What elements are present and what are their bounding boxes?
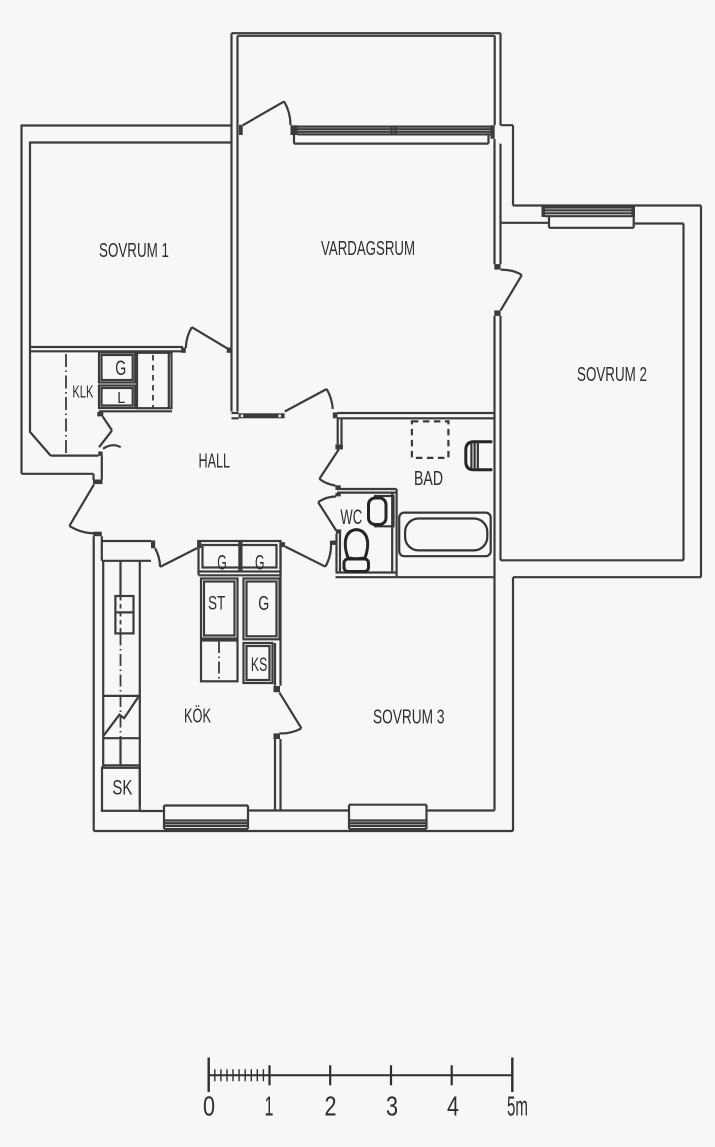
svg-text:3: 3 <box>386 1091 398 1122</box>
svg-text:SOVRUM 2: SOVRUM 2 <box>577 364 647 386</box>
svg-text:0: 0 <box>203 1091 215 1122</box>
svg-text:L: L <box>117 390 125 407</box>
svg-text:SK: SK <box>112 777 132 800</box>
svg-text:KÖK: KÖK <box>184 706 211 728</box>
svg-text:SOVRUM 1: SOVRUM 1 <box>99 240 169 262</box>
svg-text:ST: ST <box>208 594 226 615</box>
svg-text:5m: 5m <box>507 1091 528 1122</box>
svg-text:VARDAGSRUM: VARDAGSRUM <box>321 238 415 260</box>
svg-text:BAD: BAD <box>414 468 443 490</box>
svg-text:2: 2 <box>325 1091 337 1122</box>
svg-text:KS: KS <box>251 655 267 676</box>
svg-text:4: 4 <box>447 1091 459 1122</box>
svg-text:SOVRUM 3: SOVRUM 3 <box>373 707 445 729</box>
svg-text:KLK: KLK <box>72 382 93 402</box>
svg-text:HALL: HALL <box>199 451 231 473</box>
svg-text:G: G <box>258 593 269 615</box>
svg-text:1: 1 <box>265 1091 274 1122</box>
svg-text:G: G <box>217 552 227 575</box>
svg-text:G: G <box>255 552 265 575</box>
svg-text:G: G <box>115 357 126 380</box>
svg-text:WC: WC <box>340 506 362 529</box>
